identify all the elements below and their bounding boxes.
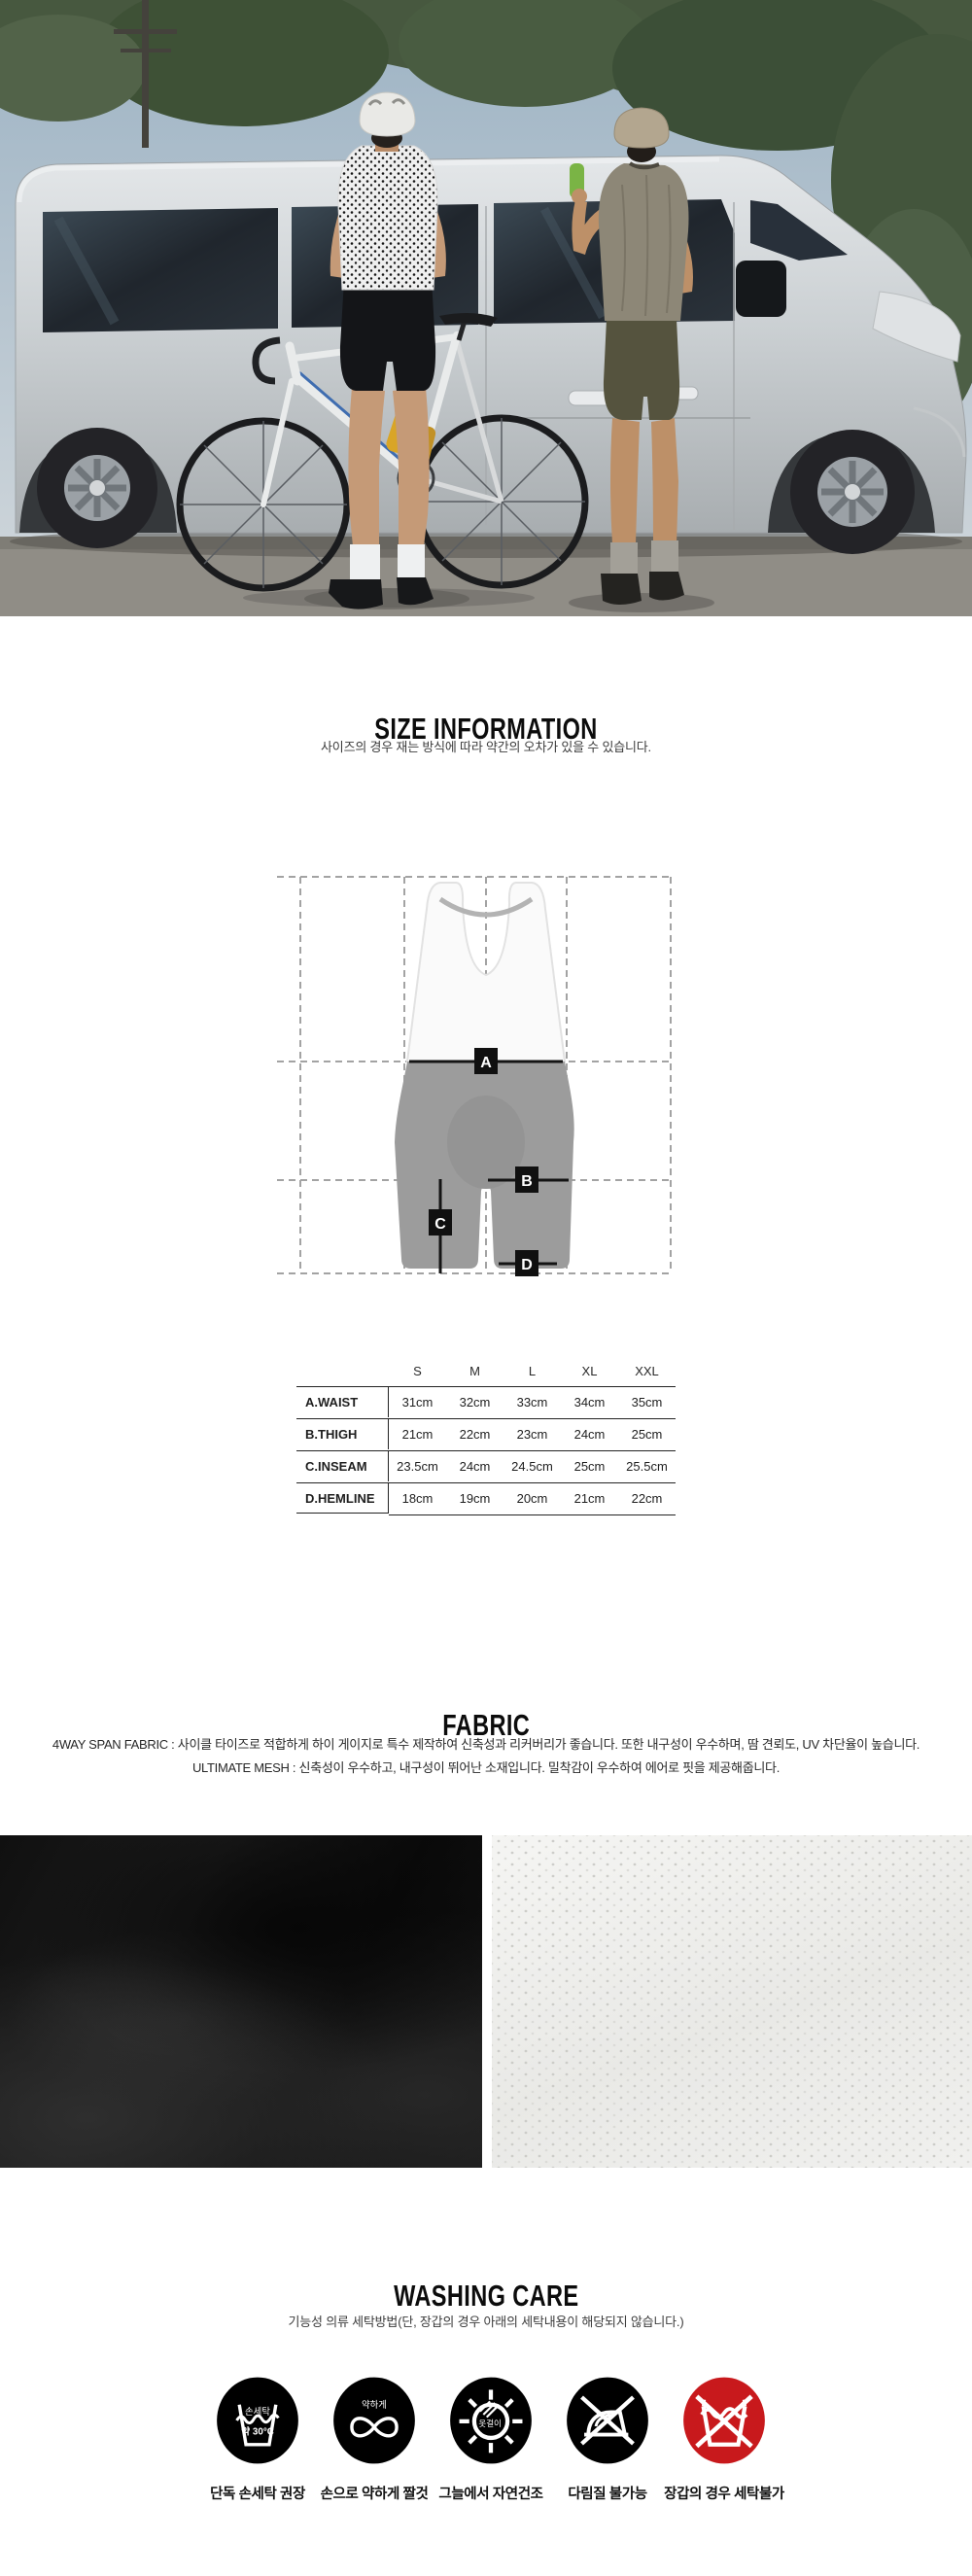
size-col-corner (296, 1356, 389, 1386)
table-cell: 25cm (618, 1418, 676, 1450)
table-cell: 21cm (561, 1482, 618, 1515)
fabric-swatch-mesh (492, 1835, 972, 2168)
size-information-subtitle: 사이즈의 경우 재는 방식에 따라 약간의 오차가 있을 수 있습니다. (0, 737, 972, 755)
hanger-text: 옷걸이 (478, 2419, 502, 2428)
size-table: S M L XL XXL A.WAIST 31cm 32cm 33cm 34cm… (296, 1356, 676, 1515)
table-cell: 31cm (389, 1386, 446, 1418)
care-label-5: 장갑의 경우 세탁불가 (642, 2483, 807, 2503)
table-cell: 24cm (446, 1450, 503, 1482)
table-cell: 35cm (618, 1386, 676, 1418)
table-cell: 23.5cm (389, 1450, 446, 1482)
label-b: B (521, 1173, 533, 1190)
white-helmet (360, 92, 415, 136)
olive-bib-shorts (604, 319, 679, 420)
table-cell: 25cm (561, 1450, 618, 1482)
hand-wash-30-icon: 손세탁 약 30°C (212, 2372, 303, 2469)
size-diagram: A B C D (248, 821, 724, 1298)
size-col-l: L (503, 1356, 561, 1386)
temp-30-text: 약 30°C (241, 2425, 274, 2438)
beige-helmet (614, 108, 669, 148)
table-cell: 34cm (561, 1386, 618, 1418)
label-c: C (434, 1216, 446, 1233)
row-label-inseam: C.INSEAM (296, 1450, 389, 1481)
no-ironing-icon (562, 2372, 653, 2469)
no-washing-gloves-icon (678, 2372, 770, 2469)
size-col-xxl: XXL (618, 1356, 676, 1386)
size-col-s: S (389, 1356, 446, 1386)
row-label-waist: A.WAIST (296, 1386, 389, 1417)
table-cell: 24.5cm (503, 1450, 561, 1482)
table-cell: 22cm (446, 1418, 503, 1450)
size-col-xl: XL (561, 1356, 618, 1386)
washing-care-subtitle: 기능성 의류 세탁방법(단, 장갑의 경우 아래의 세탁내용이 해당되지 않습니… (0, 2312, 972, 2330)
hand-wash-text: 손세탁 (245, 2406, 270, 2417)
table-cell: 18cm (389, 1482, 446, 1515)
label-a: A (480, 1055, 492, 1071)
table-cell: 24cm (561, 1418, 618, 1450)
row-label-thigh: B.THIGH (296, 1418, 389, 1449)
row-label-hemline: D.HEMLINE (296, 1482, 389, 1514)
side-mirror (736, 261, 786, 317)
label-d: D (521, 1257, 533, 1273)
hero-photo-illustration (0, 0, 972, 616)
van-wheel-front (790, 430, 915, 554)
table-cell: 19cm (446, 1482, 503, 1515)
table-cell: 25.5cm (618, 1450, 676, 1482)
fabric-swatch-black (0, 1835, 482, 2168)
table-cell: 33cm (503, 1386, 561, 1418)
bib-shorts-body (395, 1062, 574, 1269)
table-cell: 21cm (389, 1418, 446, 1450)
fabric-desc-line1: 4WAY SPAN FABRIC : 사이클 타이즈로 적합하게 하이 게이지로… (0, 1734, 972, 1753)
washing-care-title: WASHING CARE (0, 2277, 972, 2315)
wind-vest (599, 163, 689, 321)
shade-dry-icon: 옷걸이 (445, 2372, 537, 2469)
table-cell: 32cm (446, 1386, 503, 1418)
dotted-jersey (338, 146, 437, 290)
van (16, 156, 966, 554)
size-col-m: M (446, 1356, 503, 1386)
hero-photo (0, 0, 972, 616)
van-wheel-rear (37, 428, 157, 548)
gentle-wring-icon: 약하게 (329, 2372, 420, 2469)
product-detail-page: SIZE INFORMATION 사이즈의 경우 재는 방식에 따라 약간의 오… (0, 0, 972, 2576)
table-cell: 20cm (503, 1482, 561, 1515)
table-cell: 22cm (618, 1482, 676, 1515)
gentle-text: 약하게 (362, 2399, 387, 2410)
table-cell: 23cm (503, 1418, 561, 1450)
fabric-desc-line2: ULTIMATE MESH : 신축성이 우수하고, 내구성이 뛰어난 소재입니… (0, 1758, 972, 1776)
